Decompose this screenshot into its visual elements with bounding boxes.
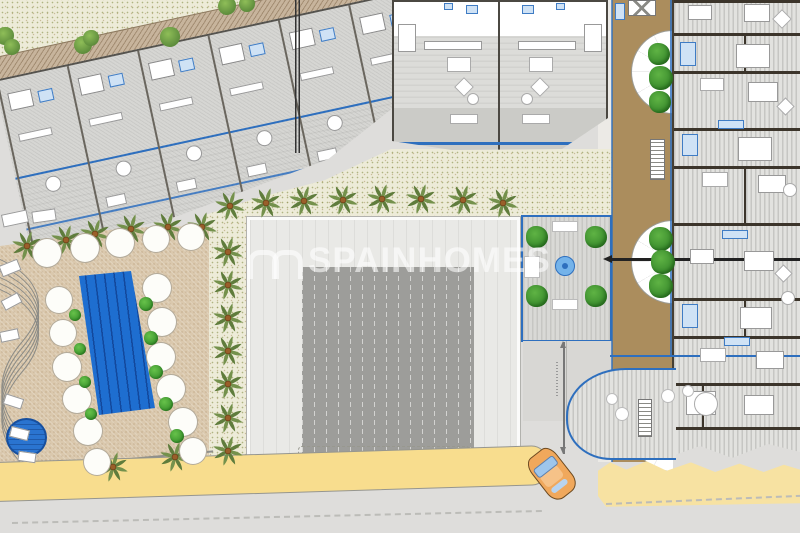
- tree: [649, 66, 673, 90]
- palm-tree: [249, 186, 283, 220]
- furniture: [781, 291, 795, 305]
- tree: [585, 226, 607, 248]
- furniture: [682, 304, 698, 328]
- tree: [585, 285, 607, 307]
- furniture: [447, 57, 471, 72]
- sun-umbrella: [49, 319, 77, 347]
- bush: [239, 0, 255, 12]
- furniture: [518, 41, 576, 50]
- furniture: [615, 3, 625, 20]
- sun-umbrella: [105, 228, 135, 258]
- furniture: [552, 221, 578, 232]
- watermark-logo-arch-icon: [272, 250, 303, 279]
- furniture: [744, 395, 774, 415]
- sun-umbrella: [73, 416, 103, 446]
- furniture: [682, 134, 698, 156]
- tree: [651, 250, 675, 274]
- bush: [139, 297, 153, 311]
- tree: [648, 43, 670, 65]
- furniture: [756, 351, 784, 369]
- bush: [69, 309, 81, 321]
- furniture: [521, 93, 533, 105]
- palm-tree: [211, 301, 245, 335]
- bush: [79, 376, 91, 388]
- furniture: [444, 3, 453, 10]
- furniture: [1, 292, 23, 311]
- furniture: [700, 348, 726, 362]
- furniture: [718, 120, 744, 129]
- palm-tree: [211, 268, 245, 302]
- furniture: [615, 407, 629, 421]
- furniture: [628, 0, 656, 16]
- furniture: [31, 208, 56, 223]
- furniture: [3, 393, 24, 409]
- furniture: [680, 42, 696, 66]
- furniture: [17, 451, 36, 463]
- furniture: [638, 399, 652, 437]
- furniture: [0, 328, 20, 343]
- sun-umbrella: [177, 223, 205, 251]
- furniture: [738, 137, 772, 161]
- bush: [149, 365, 163, 379]
- furniture: [688, 5, 712, 20]
- furniture: [661, 389, 675, 403]
- furniture: [702, 172, 728, 187]
- site-plan: SPAINHOMES: [0, 0, 800, 533]
- bush: [144, 331, 158, 345]
- furniture: [736, 44, 770, 68]
- furniture: [772, 9, 792, 29]
- sun-umbrella: [70, 233, 100, 263]
- bush: [170, 429, 184, 443]
- bush: [160, 27, 180, 47]
- furniture: [529, 57, 553, 72]
- furniture: [722, 230, 748, 239]
- sun-umbrella: [179, 437, 207, 465]
- furniture: [776, 97, 794, 115]
- sun-umbrella: [83, 448, 111, 476]
- sun-umbrella: [45, 286, 73, 314]
- furniture: [530, 77, 550, 97]
- bush: [218, 0, 236, 15]
- furniture: [398, 24, 416, 52]
- furniture: [740, 307, 772, 329]
- palm-tree: [365, 182, 399, 216]
- palm-tree: [404, 182, 438, 216]
- palm-tree: [326, 183, 360, 217]
- furniture: [450, 114, 478, 124]
- furniture: [1, 209, 29, 227]
- palm-tree: [446, 183, 480, 217]
- furniture: [522, 114, 550, 124]
- furniture: [9, 426, 30, 441]
- furniture: [467, 93, 479, 105]
- palm-tree: [211, 367, 245, 401]
- furniture: [466, 5, 478, 14]
- furniture: [690, 249, 714, 264]
- furniture: [682, 385, 694, 397]
- furniture: [650, 139, 665, 180]
- furniture: [552, 299, 578, 310]
- tree: [649, 227, 673, 251]
- furniture: [606, 393, 618, 405]
- palm-tree: [287, 184, 321, 218]
- palm-tree: [211, 334, 245, 368]
- palm-tree: [211, 434, 245, 468]
- furniture: [694, 392, 718, 416]
- palm-tree: [211, 401, 245, 435]
- palm-tree: [486, 186, 520, 220]
- furniture: [783, 183, 797, 197]
- furniture: [700, 78, 724, 91]
- furniture: [584, 24, 602, 52]
- tree: [649, 274, 673, 298]
- furniture: [0, 259, 22, 278]
- furniture: [522, 5, 534, 14]
- furniture: [424, 41, 482, 50]
- watermark-text: SPAINHOMES: [308, 244, 551, 278]
- furniture: [562, 263, 568, 269]
- watermark: SPAINHOMES: [248, 244, 551, 279]
- bush: [159, 397, 173, 411]
- furniture: [748, 82, 778, 102]
- bush: [4, 39, 20, 55]
- bush: [83, 30, 99, 46]
- sun-umbrella: [142, 225, 170, 253]
- bush: [85, 408, 97, 420]
- furniture: [744, 4, 770, 22]
- tree: [649, 91, 671, 113]
- furniture: [744, 251, 774, 271]
- furniture: [724, 337, 750, 346]
- tree: [526, 285, 548, 307]
- furniture: [758, 175, 786, 193]
- sun-umbrella: [32, 238, 62, 268]
- sun-umbrella: [52, 352, 82, 382]
- furniture: [774, 264, 792, 282]
- furniture: [556, 3, 565, 10]
- bush: [74, 343, 86, 355]
